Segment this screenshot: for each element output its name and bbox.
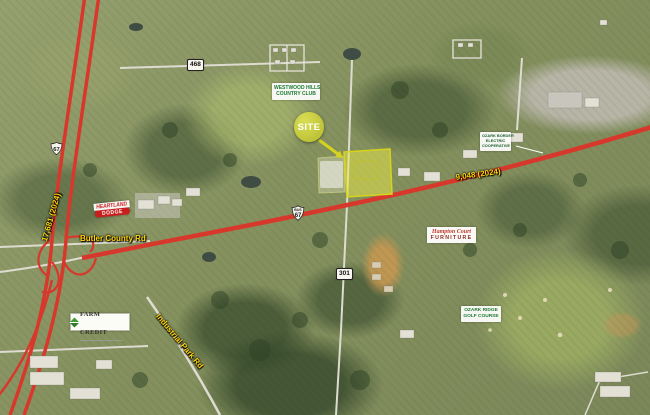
label-westwood-hills-country-club: WESTWOOD HILLS COUNTRY CLUB [272, 83, 320, 100]
site-marker: SITE [294, 112, 324, 142]
label-butler-county-rd: Butler County Rd [80, 234, 146, 243]
label-line: GOLF COURSE [463, 314, 499, 320]
us-67-shield: 67 [50, 141, 63, 156]
furniture-store-type: FURNITURE [428, 235, 475, 241]
furniture-store-logo: Hampton Court FURNITURE [427, 227, 476, 243]
sand-traps [488, 288, 612, 337]
farm-credit-tagline-rule [80, 340, 122, 342]
label-ozark-border-electric-cooperative: OZARK BORDER ELECTRIC COOPERATIVE [480, 132, 511, 151]
label-line: COUNTRY CLUB [274, 91, 318, 97]
route-468-marker: 468 [187, 59, 204, 71]
label-line: COOPERATIVE [482, 144, 509, 149]
site-parcel-highlight [318, 149, 392, 197]
tree-cover [83, 81, 629, 390]
route-301-marker: 301 [336, 268, 353, 280]
furniture-store-name: Hampton Court [428, 229, 475, 236]
business-67-shield: BUS 67 [291, 204, 305, 222]
farm-credit-logo: FARM CREDIT [70, 313, 130, 331]
business-67-shield-number: 67 [295, 213, 302, 219]
label-ozark-ridge-golf-course: OZARK RIDGE GOLF COURSE [461, 306, 501, 322]
farm-credit-leaf-icon [70, 317, 80, 327]
site-arrow-icon [319, 140, 343, 158]
business-banner-text: BUS [294, 208, 302, 212]
aerial-site-map: SITE WESTWOOD HILLS COUNTRY CLUB OZARK R… [0, 0, 650, 415]
us-67-shield-number: 67 [53, 147, 60, 153]
farm-credit-name: FARM CREDIT [80, 311, 107, 336]
